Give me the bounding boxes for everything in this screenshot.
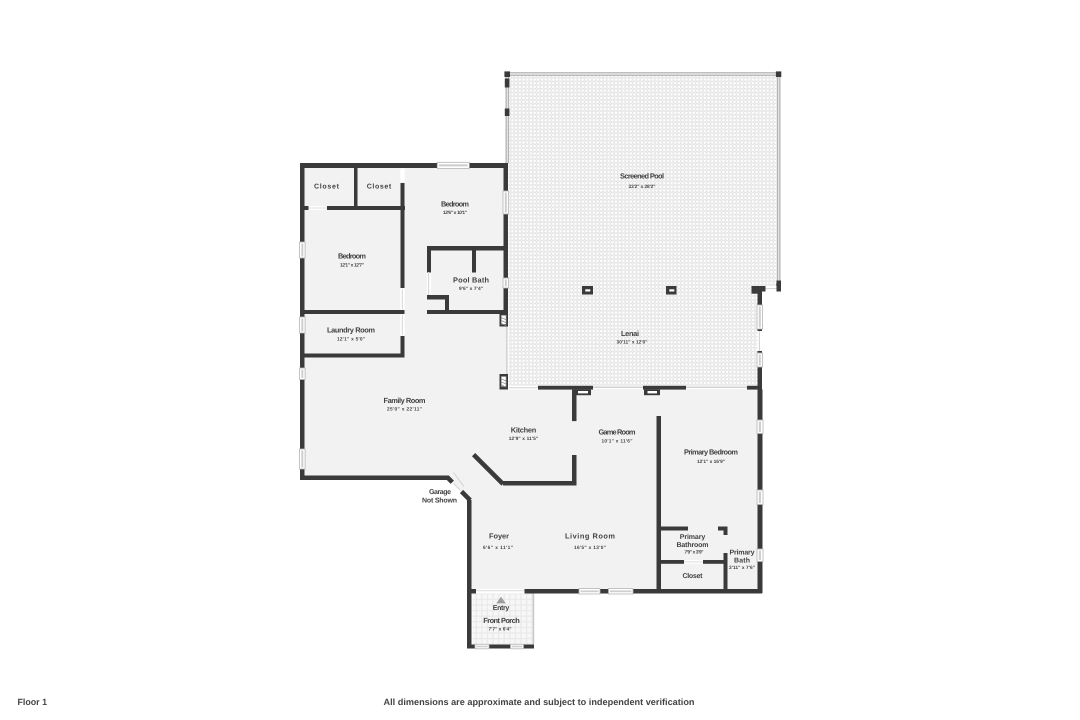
svg-text:Lenai: Lenai: [621, 329, 639, 338]
svg-text:Living Room: Living Room: [565, 532, 615, 541]
svg-text:12'1" x 5'0": 12'1" x 5'0": [337, 337, 365, 343]
svg-text:Closet: Closet: [367, 183, 392, 191]
svg-text:Game Room: Game Room: [599, 428, 636, 437]
svg-text:10'1" x 11'6": 10'1" x 11'6": [602, 439, 633, 445]
svg-text:16'5" x 13'0": 16'5" x 13'0": [574, 545, 606, 551]
svg-text:Laundry Room: Laundry Room: [327, 326, 375, 335]
svg-text:Closet: Closet: [314, 183, 340, 191]
svg-text:Closet: Closet: [683, 572, 704, 580]
svg-text:25'0" x 22'11": 25'0" x 22'11": [387, 407, 422, 413]
svg-text:Foyer: Foyer: [489, 532, 509, 541]
svg-text:Not Shown: Not Shown: [422, 497, 457, 505]
svg-text:33'2" x 28'2": 33'2" x 28'2": [629, 184, 656, 190]
svg-text:Entry: Entry: [493, 605, 510, 612]
svg-text:Bathroom: Bathroom: [677, 541, 709, 549]
svg-text:Bath: Bath: [734, 557, 750, 565]
svg-text:7'7" x 6'4": 7'7" x 6'4": [489, 627, 512, 633]
svg-text:Screened Pool: Screened Pool: [620, 172, 664, 181]
svg-text:Primary Bedroom: Primary Bedroom: [684, 448, 738, 457]
svg-text:12'9" x 11'5": 12'9" x 11'5": [509, 436, 539, 442]
svg-text:Floor 1: Floor 1: [18, 697, 48, 707]
svg-text:12'6" x 10'1": 12'6" x 10'1": [443, 210, 467, 216]
svg-text:Family Room: Family Room: [384, 396, 426, 405]
svg-text:9'6" x 7'4": 9'6" x 7'4": [459, 286, 483, 292]
svg-text:Pool Bath: Pool Bath: [453, 276, 489, 285]
svg-text:30'11" x 12'0": 30'11" x 12'0": [617, 340, 648, 346]
svg-text:3'11" x 7'6": 3'11" x 7'6": [729, 565, 755, 571]
svg-text:Garage: Garage: [429, 489, 451, 496]
svg-text:7'9" x 3'9": 7'9" x 3'9": [685, 550, 704, 556]
svg-text:Kitchen: Kitchen: [511, 426, 537, 435]
svg-text:Front Porch: Front Porch: [483, 616, 520, 625]
svg-text:All dimensions are approximate: All dimensions are approximate and subje…: [384, 697, 695, 707]
svg-text:Primary: Primary: [730, 549, 755, 557]
svg-text:12'1" x 16'9": 12'1" x 16'9": [697, 459, 725, 465]
svg-text:6'6" x 11'1": 6'6" x 11'1": [483, 545, 513, 551]
svg-text:Bedroom: Bedroom: [441, 200, 469, 209]
svg-text:12'1" x 12'7": 12'1" x 12'7": [340, 263, 364, 269]
svg-text:Primary: Primary: [680, 533, 706, 541]
svg-text:Bedroom: Bedroom: [338, 252, 366, 261]
